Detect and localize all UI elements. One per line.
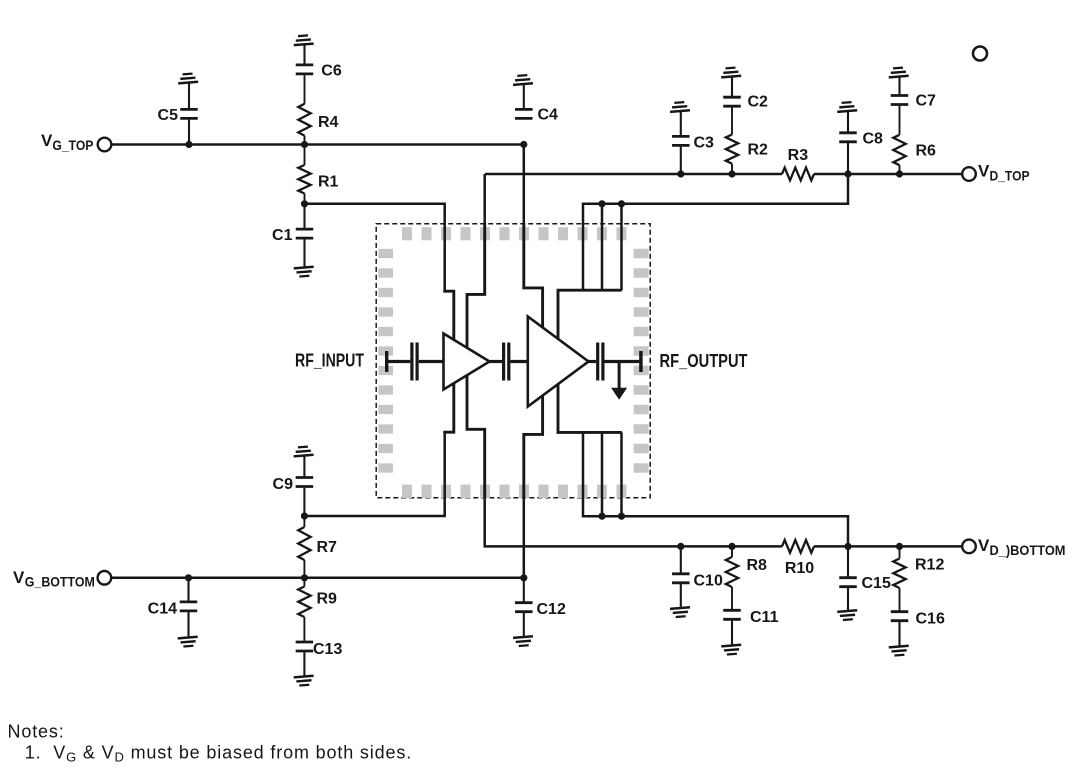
svg-text:R10: R10 <box>785 560 814 577</box>
svg-text:C7: C7 <box>916 93 937 110</box>
svg-text:RF_OUTPUT: RF_OUTPUT <box>660 351 748 371</box>
svg-text:C1: C1 <box>272 227 293 244</box>
svg-text:C8: C8 <box>863 131 884 148</box>
svg-text:C14: C14 <box>148 601 177 618</box>
svg-text:Notes:: Notes: <box>8 722 65 742</box>
svg-text:R8: R8 <box>747 557 768 574</box>
svg-text:R4: R4 <box>318 114 339 131</box>
svg-text:R7: R7 <box>317 539 338 556</box>
svg-text:D_)BOTTOM: D_)BOTTOM <box>990 542 1066 558</box>
svg-text:C5: C5 <box>158 107 179 124</box>
svg-text:C4: C4 <box>538 107 559 124</box>
svg-text:D_TOP: D_TOP <box>990 168 1030 184</box>
svg-text:C3: C3 <box>694 135 715 152</box>
svg-text:C16: C16 <box>916 611 945 628</box>
svg-text:V: V <box>41 131 53 150</box>
svg-text:R2: R2 <box>748 142 769 159</box>
svg-text:G_TOP: G_TOP <box>52 137 93 153</box>
svg-text:C10: C10 <box>694 573 723 590</box>
svg-text:RF_INPUT: RF_INPUT <box>295 350 364 370</box>
svg-text:C13: C13 <box>313 641 342 658</box>
svg-text:V: V <box>978 161 990 180</box>
svg-text:R12: R12 <box>915 557 944 574</box>
svg-text:C12: C12 <box>537 601 566 618</box>
svg-text:C2: C2 <box>748 94 769 111</box>
svg-text:C11: C11 <box>750 609 779 626</box>
svg-text:R6: R6 <box>916 143 937 160</box>
svg-text:1. VG & VD must be biased fro: 1. VG & VD must be biased from both side… <box>25 743 412 765</box>
svg-text:R3: R3 <box>788 147 809 164</box>
svg-text:R1: R1 <box>318 174 339 191</box>
svg-text:V: V <box>978 536 990 555</box>
svg-text:V: V <box>13 568 25 587</box>
svg-text:C15: C15 <box>862 575 891 592</box>
svg-text:G_BOTTOM: G_BOTTOM <box>25 573 95 589</box>
svg-text:R9: R9 <box>317 591 338 608</box>
svg-text:C6: C6 <box>321 63 342 80</box>
svg-text:C9: C9 <box>273 476 294 493</box>
